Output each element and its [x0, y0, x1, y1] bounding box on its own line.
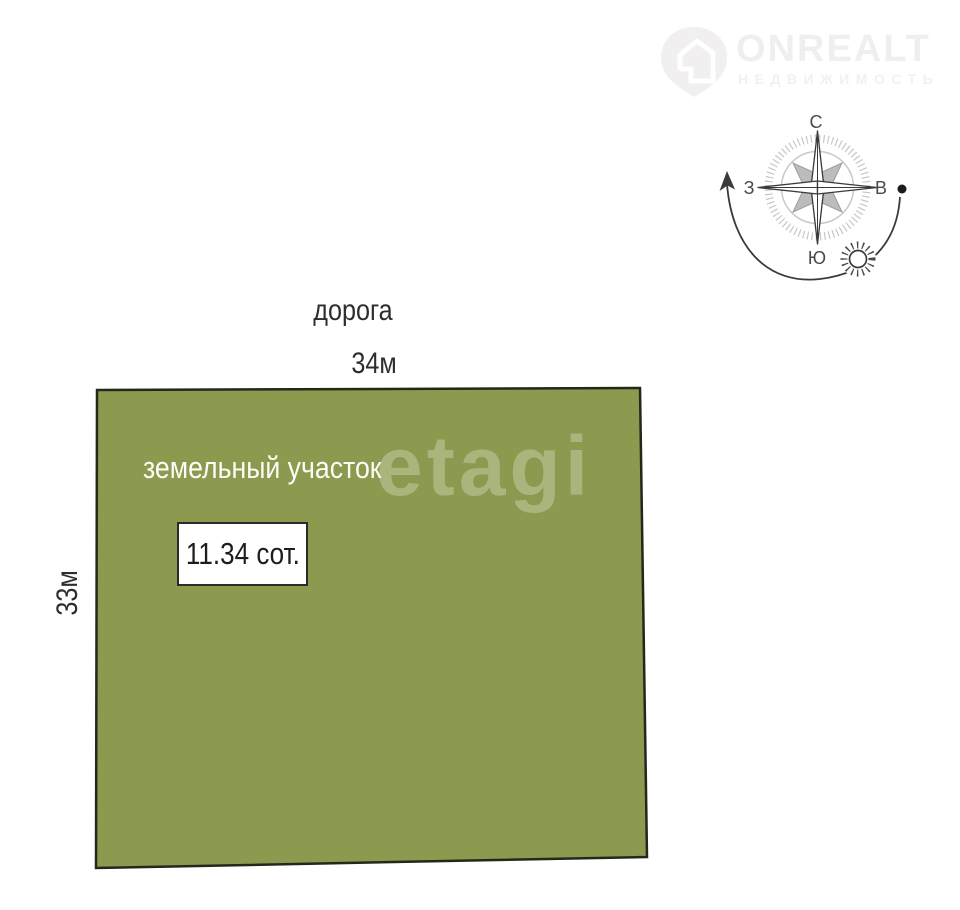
compass-east-label: В — [875, 178, 887, 198]
compass-south-label: Ю — [808, 248, 826, 268]
compass-north-label: С — [810, 112, 823, 132]
compass-west-label: З — [744, 178, 755, 198]
plot-area-box: 11.34 сот. — [177, 522, 308, 586]
sun-path-start-dot — [898, 185, 907, 194]
plot-width-dimension: 34м — [324, 347, 425, 381]
etagi-watermark: etagi — [376, 424, 592, 508]
plot-title: земельный участок — [143, 450, 381, 486]
plot-area-value: 11.34 сот. — [186, 536, 300, 572]
plot-height-dimension: 33м — [51, 551, 83, 635]
sun-icon — [840, 241, 876, 277]
compass-cardinal-points — [758, 131, 877, 244]
road-label: дорога — [286, 294, 420, 328]
land-plot-diagram-page: ONREALT НЕДВИЖИМОСТЬ — [0, 0, 960, 910]
